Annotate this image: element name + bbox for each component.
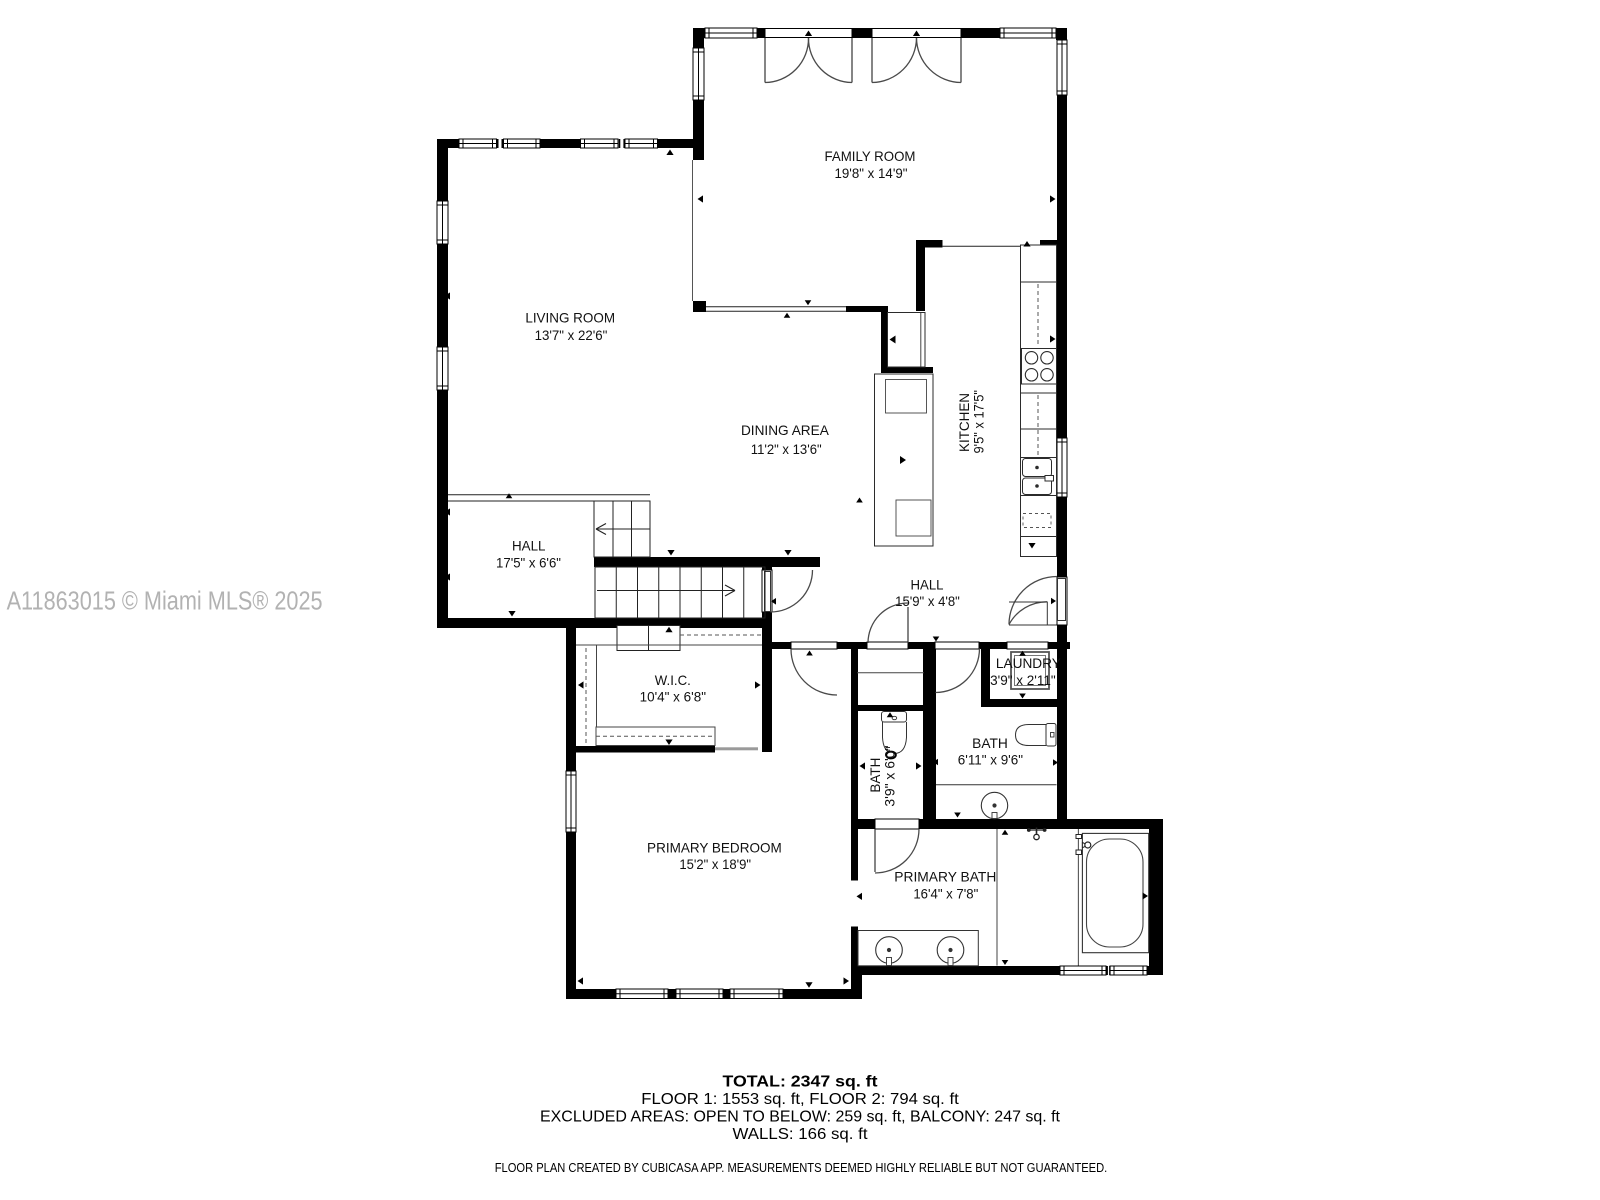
svg-text:EXCLUDED AREAS: OPEN TO BELOW:: EXCLUDED AREAS: OPEN TO BELOW: 259 sq. f…: [540, 1109, 1061, 1126]
svg-text:19'8" x 14'9": 19'8" x 14'9": [835, 165, 908, 181]
svg-text:HALL: HALL: [512, 538, 546, 554]
svg-text:3'9" x 2'11": 3'9" x 2'11": [990, 672, 1056, 688]
svg-text:W.I.C.: W.I.C.: [655, 672, 691, 688]
svg-text:17'5" x 6'6": 17'5" x 6'6": [496, 554, 561, 570]
svg-text:10'4" x 6'8": 10'4" x 6'8": [640, 688, 706, 704]
svg-text:BATH: BATH: [972, 735, 1008, 751]
svg-text:LAUNDRY: LAUNDRY: [996, 655, 1062, 671]
svg-text:15'9" x 4'8": 15'9" x 4'8": [895, 593, 960, 609]
svg-text:LIVING ROOM: LIVING ROOM: [525, 310, 615, 326]
svg-text:PRIMARY BATH: PRIMARY BATH: [894, 869, 996, 885]
svg-text:3'9" x 6'0": 3'9" x 6'0": [882, 746, 898, 807]
svg-text:15'2" x 18'9": 15'2" x 18'9": [679, 856, 751, 872]
svg-text:6'11" x 9'6": 6'11" x 9'6": [958, 751, 1023, 767]
svg-text:PRIMARY BEDROOM: PRIMARY BEDROOM: [647, 839, 782, 855]
svg-text:A11863015 © Miami MLS® 2025: A11863015 © Miami MLS® 2025: [7, 588, 323, 616]
svg-text:TOTAL: 2347 sq. ft: TOTAL: 2347 sq. ft: [723, 1074, 878, 1091]
svg-text:16'4" x 7'8": 16'4" x 7'8": [913, 886, 978, 902]
svg-text:DINING AREA: DINING AREA: [741, 422, 830, 438]
svg-text:HALL: HALL: [911, 576, 944, 592]
svg-text:13'7" x 22'6": 13'7" x 22'6": [535, 327, 608, 343]
svg-text:9'5" x 17'5": 9'5" x 17'5": [971, 390, 987, 454]
svg-text:FLOOR PLAN CREATED BY CUBICASA: FLOOR PLAN CREATED BY CUBICASA APP. MEAS…: [495, 1160, 1108, 1175]
svg-text:FLOOR 1: 1553 sq. ft, FLOOR 2:: FLOOR 1: 1553 sq. ft, FLOOR 2: 794 sq. f…: [641, 1091, 959, 1108]
svg-text:FAMILY ROOM: FAMILY ROOM: [825, 148, 916, 164]
svg-text:WALLS: 166 sq. ft: WALLS: 166 sq. ft: [733, 1126, 869, 1143]
svg-text:11'2" x 13'6": 11'2" x 13'6": [751, 441, 822, 457]
